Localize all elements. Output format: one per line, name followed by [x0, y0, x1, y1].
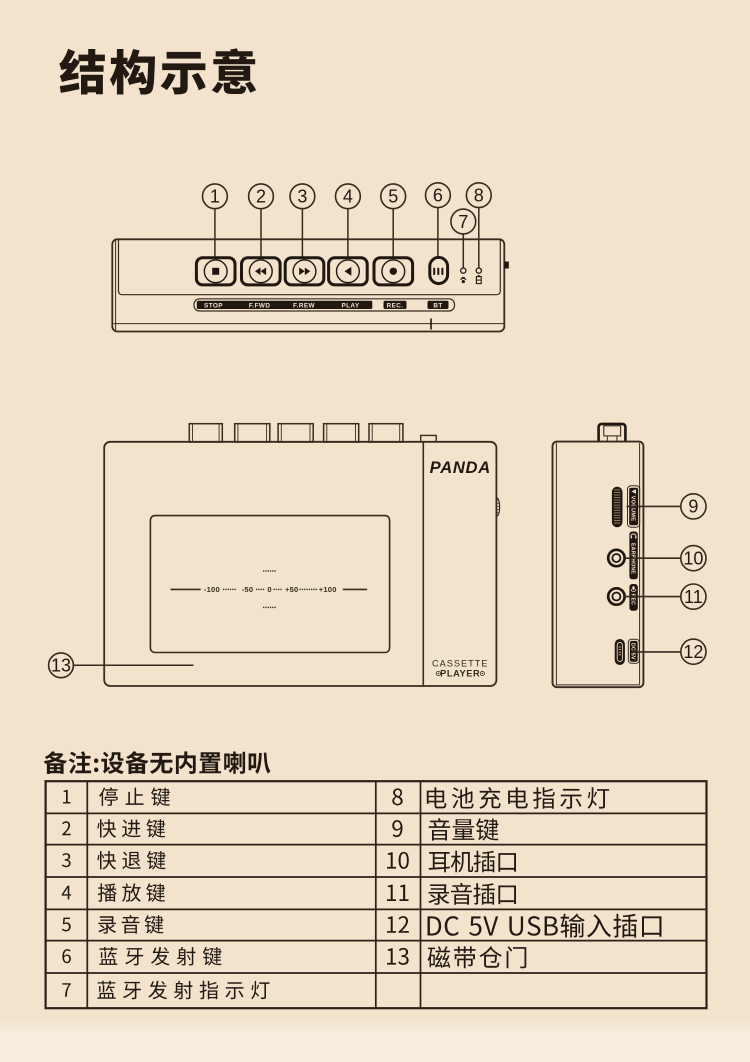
svg-text:10: 10 [683, 549, 703, 569]
svg-text:REC: REC [629, 594, 635, 606]
svg-text:STOP: STOP [204, 302, 223, 309]
svg-text:F.REW: F.REW [293, 302, 315, 309]
svg-text:REC.: REC. [387, 302, 404, 309]
svg-text:-50: -50 [242, 585, 254, 594]
svg-text:8: 8 [474, 186, 484, 206]
svg-text:3: 3 [297, 187, 307, 207]
svg-text:F.FWD: F.FWD [249, 302, 271, 309]
svg-text:+50: +50 [285, 585, 298, 594]
svg-text:4: 4 [343, 187, 353, 207]
svg-text:1: 1 [210, 187, 220, 207]
svg-text:-100: -100 [204, 585, 220, 594]
svg-text:PANDA: PANDA [430, 458, 491, 477]
svg-text:0: 0 [267, 585, 271, 594]
svg-text:VOLUME: VOLUME [630, 496, 636, 522]
svg-text:5: 5 [388, 187, 398, 207]
svg-text:BT: BT [433, 302, 442, 309]
svg-text:13: 13 [51, 656, 71, 676]
svg-text:9: 9 [688, 497, 698, 517]
svg-text:PLAY: PLAY [341, 302, 359, 309]
svg-text:6: 6 [433, 186, 443, 206]
svg-text:12: 12 [683, 642, 703, 662]
svg-text:CASSETTE: CASSETTE [432, 659, 489, 669]
svg-text:2: 2 [256, 187, 266, 207]
svg-text:7: 7 [458, 212, 468, 232]
svg-text:PLAYER: PLAYER [440, 669, 480, 679]
svg-text:+100: +100 [319, 585, 337, 594]
svg-text:11: 11 [684, 587, 703, 607]
